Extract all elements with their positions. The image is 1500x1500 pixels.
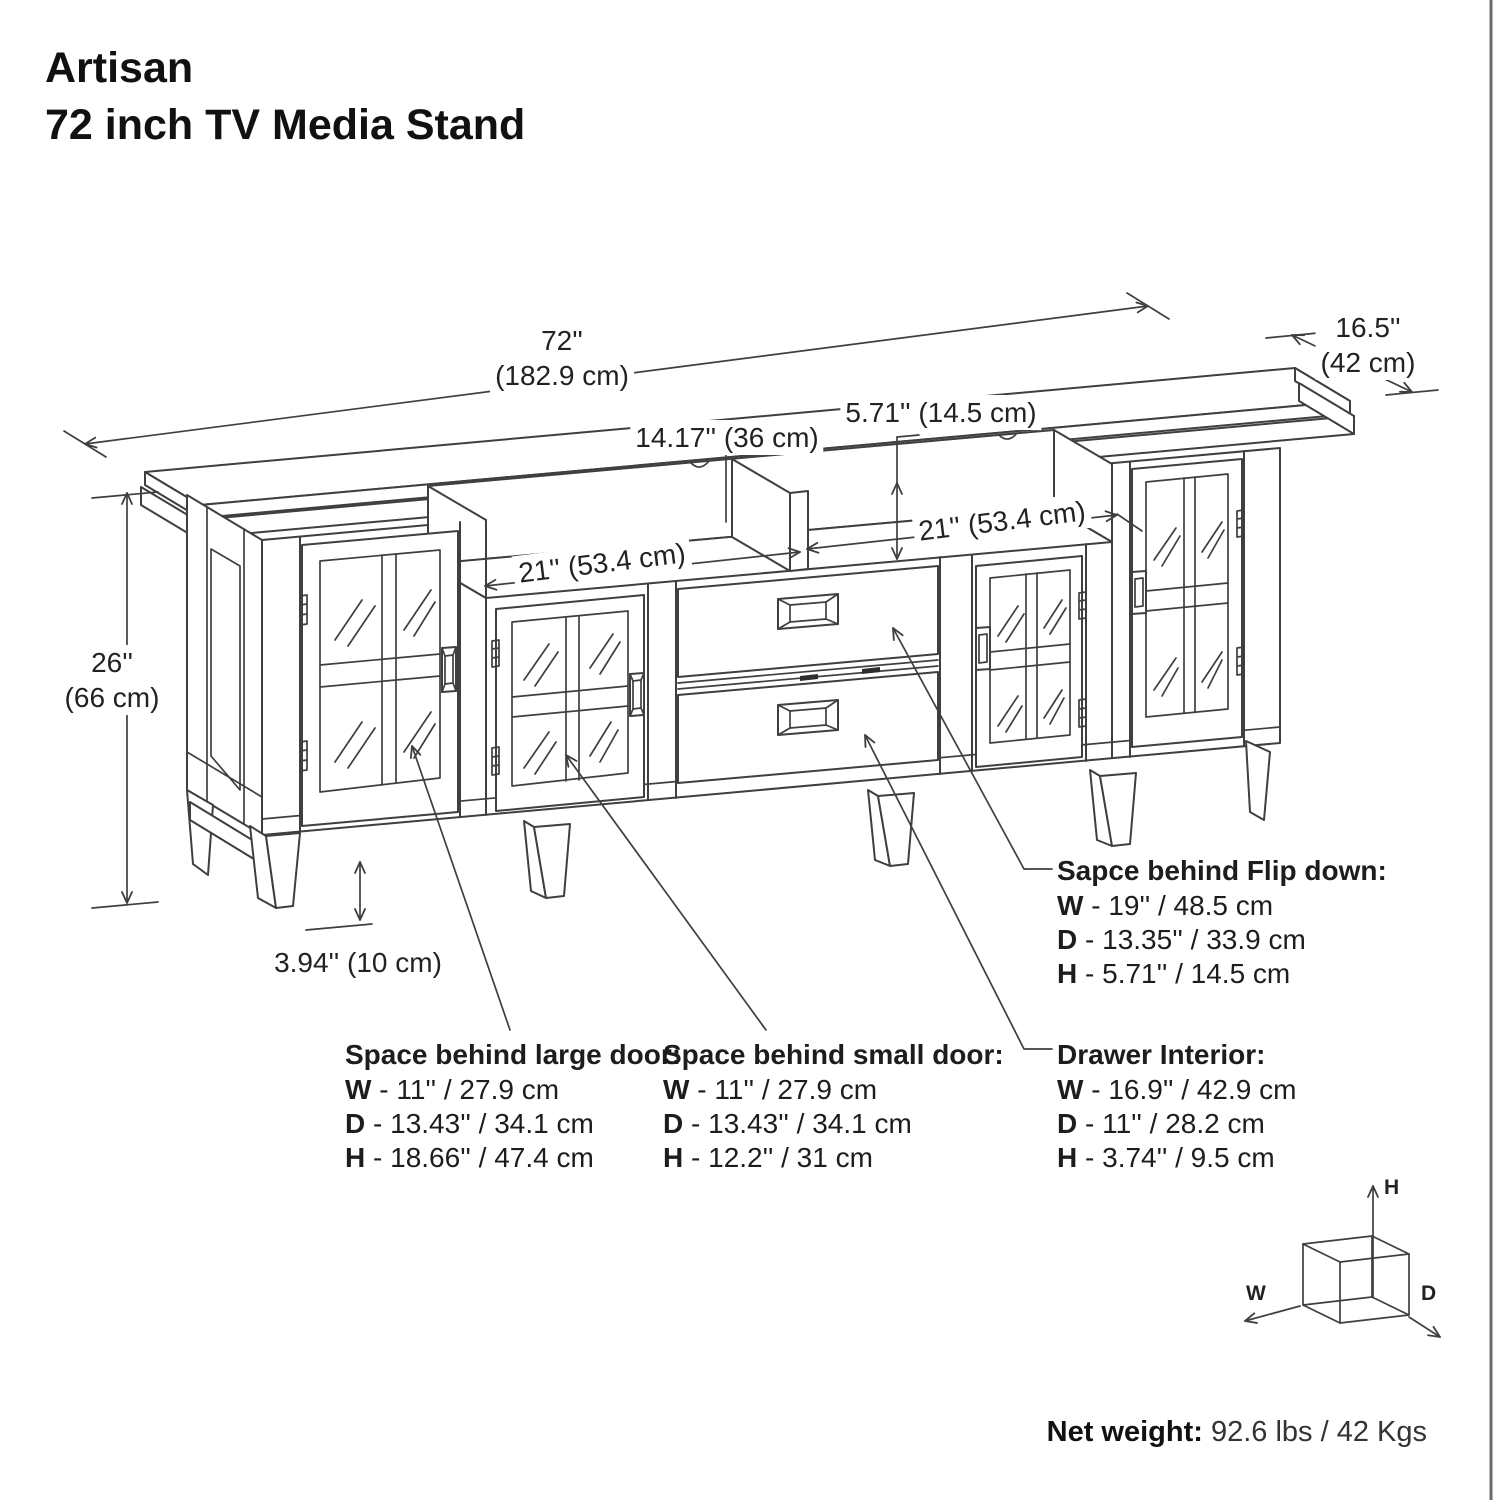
drawer-spec-block: Drawer Interior: W - 16.9'' / 42.9 cm D …: [1057, 1038, 1296, 1175]
spec-row: D - 13.43'' / 34.1 cm: [663, 1107, 1004, 1141]
spec-row: H - 12.2'' / 31 cm: [663, 1141, 1004, 1175]
opening-height-dimension-label: 5.71'' (14.5 cm): [840, 395, 1041, 430]
large-glass-door-right: [1132, 459, 1244, 747]
product-name: Artisan: [45, 40, 525, 97]
spec-row: H - 3.74'' / 9.5 cm: [1057, 1141, 1296, 1175]
page-title: Artisan 72 inch TV Media Stand: [45, 40, 525, 154]
spec-row: D - 11'' / 28.2 cm: [1057, 1107, 1296, 1141]
door-handle: [630, 673, 644, 716]
dimension-cube-icon: [1245, 1186, 1440, 1337]
shelf-center-dimension-label: 14.17'' (36 cm): [630, 420, 823, 455]
door-handle: [976, 627, 990, 670]
small-glass-door-right: [976, 556, 1086, 767]
cube-axis-label-h: H: [1384, 1176, 1399, 1200]
width-dimension-label: 72'' (182.9 cm): [490, 323, 634, 393]
small-door-spec-block: Space behind small door: W - 11'' / 27.9…: [663, 1038, 1004, 1175]
furniture-line-drawing: [0, 0, 1500, 1500]
height-dimension-label: 26'' (66 cm): [60, 645, 165, 715]
small-glass-door-left: [492, 595, 644, 811]
spec-row: W - 11'' / 27.9 cm: [663, 1073, 1004, 1107]
spec-row: D - 13.35'' / 33.9 cm: [1057, 923, 1387, 957]
spec-row: W - 16.9'' / 42.9 cm: [1057, 1073, 1296, 1107]
drawer-handle: [778, 700, 838, 735]
leg-height-dimension-line: [306, 862, 372, 930]
spec-row: W - 11'' / 27.9 cm: [345, 1073, 681, 1107]
product-dimension-sheet: Artisan 72 inch TV Media Stand 72'' (182…: [0, 0, 1500, 1500]
depth-dimension-label: 16.5'' (42 cm): [1316, 310, 1421, 380]
flip-down-spec-block: Sapce behind Flip down: W - 19'' / 48.5 …: [1057, 854, 1387, 991]
drawer-leader: [865, 735, 1052, 1049]
product-subtitle: 72 inch TV Media Stand: [45, 97, 525, 154]
net-weight: Net weight: 92.6 lbs / 42 Kgs: [1047, 1416, 1427, 1449]
large-door-spec-block: Space behind large door: W - 11'' / 27.9…: [345, 1038, 681, 1175]
drawer-handle: [778, 594, 838, 629]
door-handle: [1132, 571, 1146, 614]
spec-row: W - 19'' / 48.5 cm: [1057, 889, 1387, 923]
spec-row: H - 5.71'' / 14.5 cm: [1057, 957, 1387, 991]
spec-row: D - 13.43'' / 34.1 cm: [345, 1107, 681, 1141]
door-handle: [442, 647, 456, 692]
cube-axis-label-w: W: [1246, 1282, 1266, 1306]
spec-row: H - 18.66'' / 47.4 cm: [345, 1141, 681, 1175]
large-glass-door-left: [300, 531, 458, 826]
cube-axis-label-d: D: [1421, 1282, 1436, 1306]
leg-height-dimension-label: 3.94'' (10 cm): [269, 945, 447, 980]
